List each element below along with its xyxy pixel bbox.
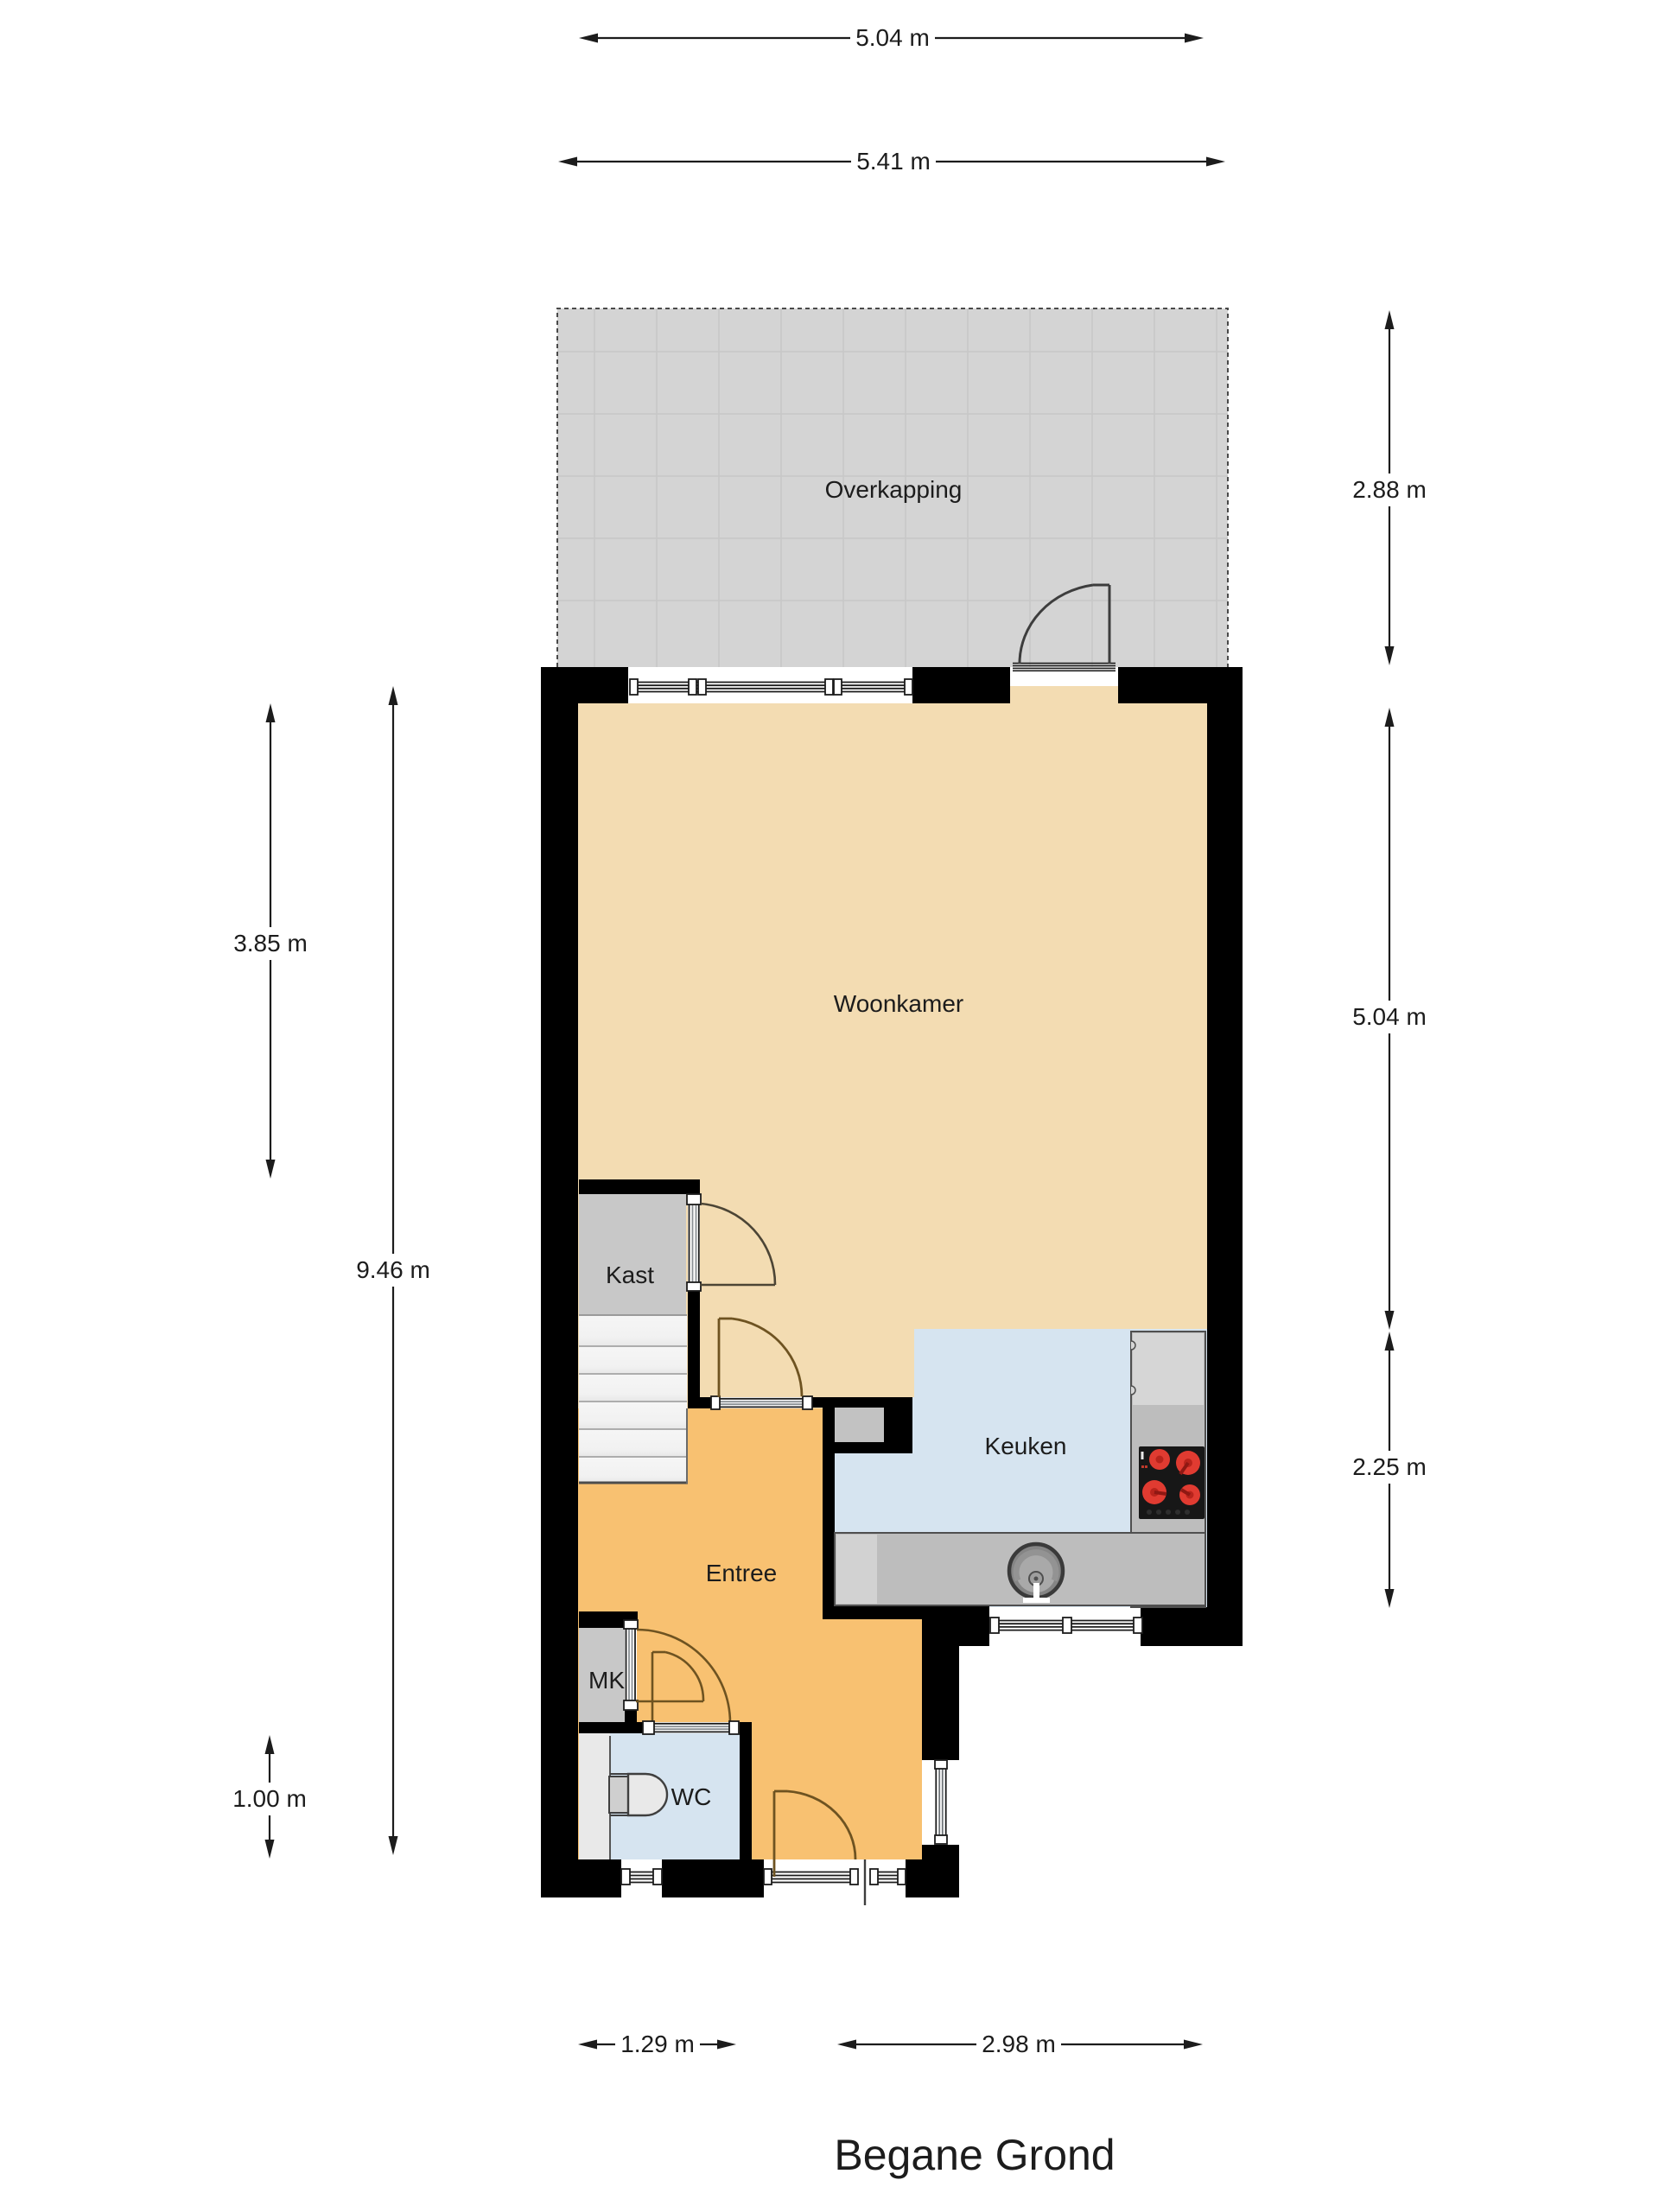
svg-text:5.04 m: 5.04 m	[855, 24, 930, 51]
svg-text:5.41 m: 5.41 m	[856, 148, 931, 175]
svg-text:5.04 m: 5.04 m	[1352, 1003, 1427, 1030]
svg-text:2.88 m: 2.88 m	[1352, 476, 1427, 503]
svg-text:Overkapping: Overkapping	[825, 476, 963, 503]
svg-text:WC: WC	[671, 1783, 712, 1810]
svg-text:9.46 m: 9.46 m	[356, 1256, 430, 1283]
svg-text:Woonkamer: Woonkamer	[834, 990, 963, 1017]
svg-text:2.98 m: 2.98 m	[982, 2031, 1056, 2057]
svg-text:1.29 m: 1.29 m	[620, 2031, 695, 2057]
svg-text:1.00 m: 1.00 m	[232, 1785, 307, 1812]
svg-text:MK: MK	[588, 1667, 625, 1694]
svg-text:Keuken: Keuken	[985, 1433, 1067, 1459]
svg-text:Kast: Kast	[606, 1262, 654, 1288]
svg-text:3.85 m: 3.85 m	[233, 930, 308, 957]
svg-text:Entree: Entree	[706, 1560, 778, 1586]
svg-text:2.25 m: 2.25 m	[1352, 1453, 1427, 1480]
svg-text:Begane Grond: Begane Grond	[834, 2131, 1115, 2179]
